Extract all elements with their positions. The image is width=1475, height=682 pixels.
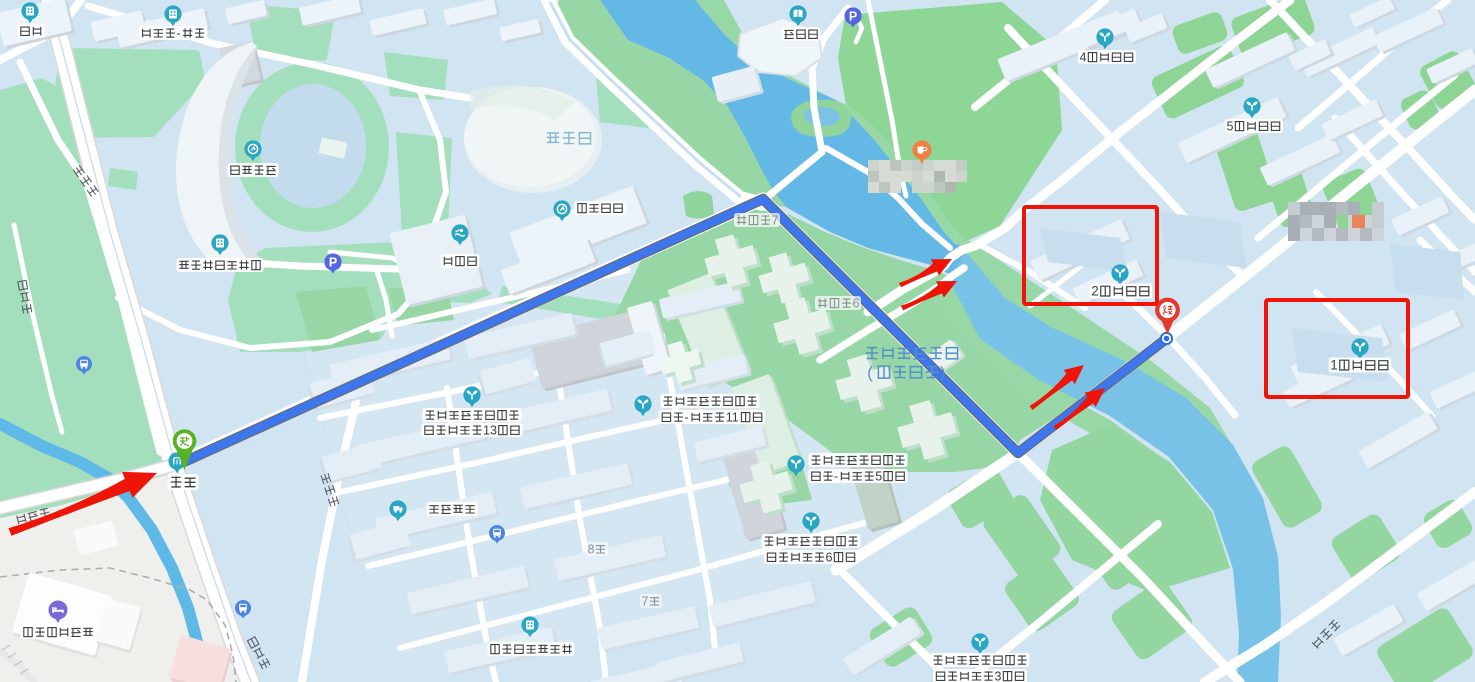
svg-text:5: 5 — [875, 469, 882, 483]
svg-text:7: 7 — [642, 594, 649, 608]
svg-text:1: 1 — [1330, 358, 1338, 373]
svg-text:P: P — [329, 255, 337, 269]
svg-text:5: 5 — [1227, 119, 1234, 133]
svg-text:(: ( — [867, 363, 873, 382]
svg-text:3: 3 — [995, 669, 1002, 682]
svg-text:): ) — [940, 363, 946, 382]
svg-text:4: 4 — [1080, 50, 1087, 64]
svg-text:2: 2 — [1091, 284, 1099, 299]
svg-text:-: - — [684, 410, 688, 424]
svg-text:-: - — [834, 469, 838, 483]
svg-text:-: - — [176, 26, 180, 40]
svg-text:P: P — [849, 9, 857, 23]
svg-text:6: 6 — [853, 296, 860, 310]
svg-text:13: 13 — [483, 423, 497, 437]
svg-text:7: 7 — [772, 213, 779, 227]
svg-text:11: 11 — [726, 410, 739, 424]
svg-text:8: 8 — [588, 542, 595, 556]
svg-text:6: 6 — [826, 550, 833, 564]
